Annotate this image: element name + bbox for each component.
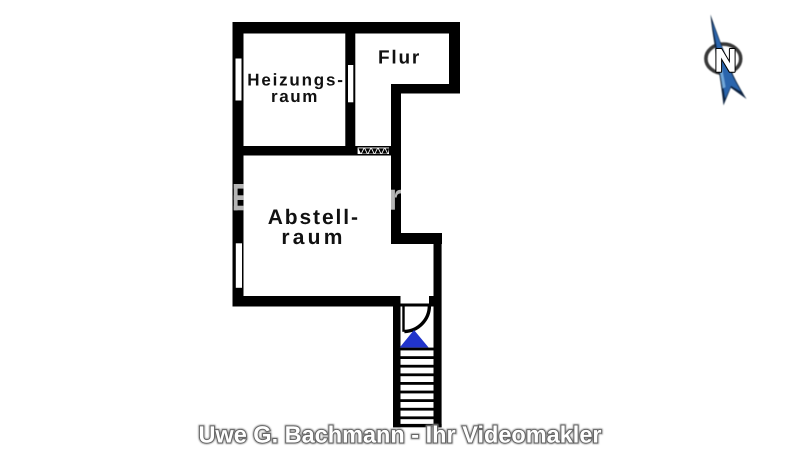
svg-text:raum: raum <box>281 226 345 249</box>
svg-text:Flur: Flur <box>378 48 421 69</box>
svg-text:raum: raum <box>271 87 319 106</box>
svg-text:Uwe G. Bachmann - Ihr Videomak: Uwe G. Bachmann - Ihr Videomakler <box>198 422 601 448</box>
